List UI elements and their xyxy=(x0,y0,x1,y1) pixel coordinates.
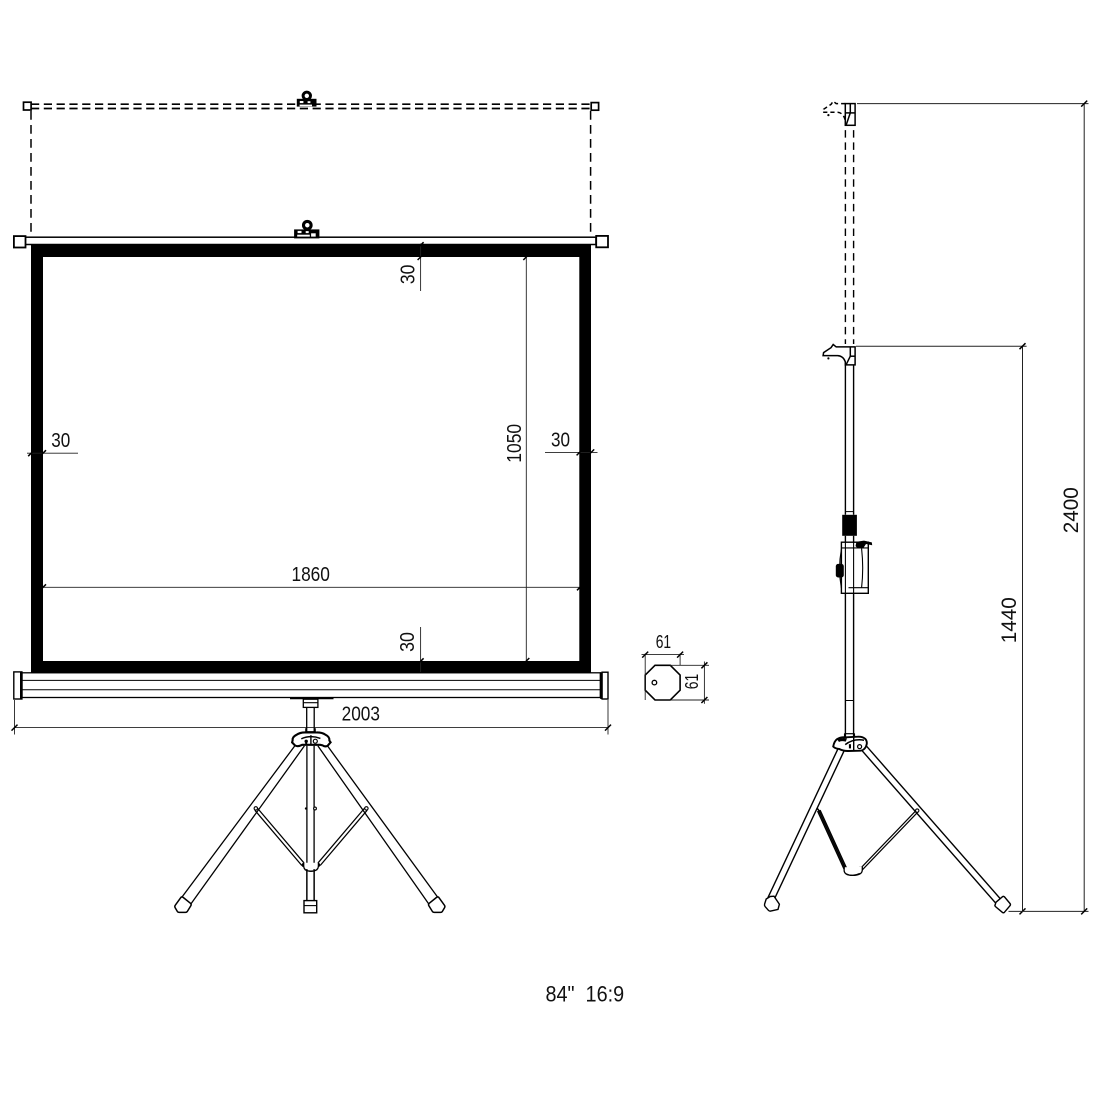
svg-text:84" 16:9: 84" 16:9 xyxy=(546,982,625,1007)
svg-text:30: 30 xyxy=(397,265,419,285)
svg-text:61: 61 xyxy=(681,674,702,689)
svg-text:1440: 1440 xyxy=(998,597,1021,643)
svg-text:30: 30 xyxy=(51,430,70,452)
svg-text:61: 61 xyxy=(656,631,671,652)
svg-text:30: 30 xyxy=(397,632,419,652)
svg-text:1050: 1050 xyxy=(504,424,526,463)
svg-text:1860: 1860 xyxy=(291,564,330,586)
svg-text:2003: 2003 xyxy=(342,703,380,725)
svg-text:2400: 2400 xyxy=(1060,487,1083,533)
svg-text:30: 30 xyxy=(551,429,570,451)
